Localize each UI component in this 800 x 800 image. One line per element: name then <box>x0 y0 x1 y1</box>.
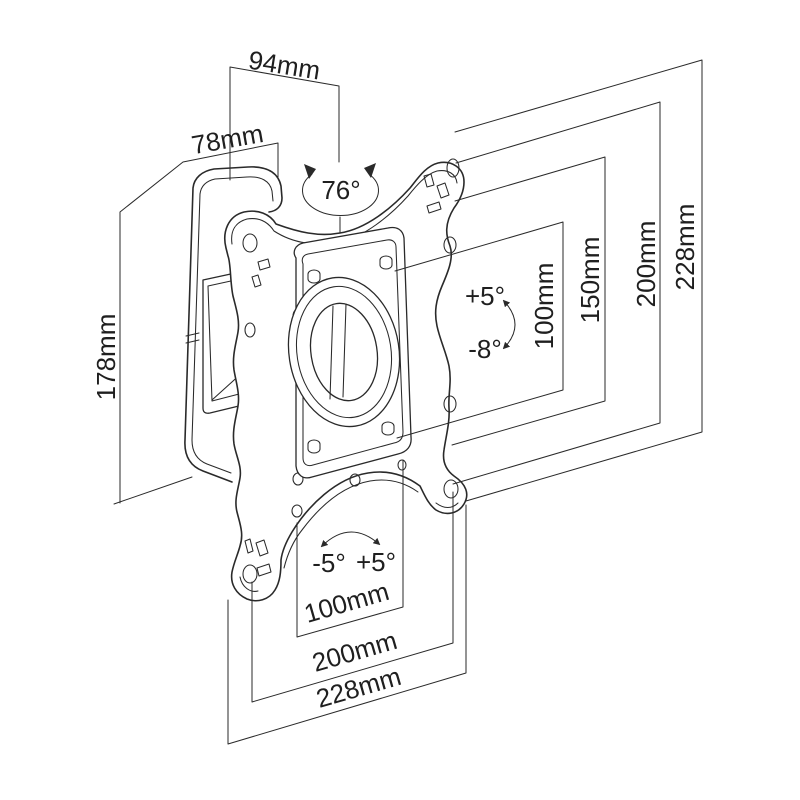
dim-label-wall-plate-width: 78mm <box>189 118 265 160</box>
boss-bottom-left <box>308 440 320 453</box>
boss-top-left <box>308 270 320 283</box>
angle-label-base-left: -5° <box>312 548 346 578</box>
swivel-arrow-right-icon <box>364 163 376 178</box>
dim-label-right-228: 228mm <box>670 204 700 291</box>
base-swivel-arc-path <box>322 532 379 546</box>
dim-label-bottom-100: 100mm <box>301 576 393 629</box>
mount-dimension-diagram: 94mm 78mm 76° 178mm +5° -8° 100mm 150mm … <box>0 0 800 800</box>
tilt-arc <box>504 301 515 348</box>
base-swivel-arc <box>322 532 379 546</box>
dim-label-right-100: 100mm <box>529 263 559 350</box>
tilt-bracket <box>278 227 411 477</box>
dim-label-right-200: 200mm <box>631 221 661 308</box>
boss-top-right <box>380 256 392 269</box>
angle-label-tilt-down: -8° <box>468 334 502 364</box>
angle-label-base-right: +5° <box>356 547 396 577</box>
boss-bottom-right <box>382 422 394 435</box>
angle-label-tilt-up: +5° <box>465 281 505 311</box>
tilt-arc-path <box>504 301 515 348</box>
diagram-canvas: 94mm 78mm 76° 178mm +5° -8° 100mm 150mm … <box>0 0 800 800</box>
swivel-arrow-left-icon <box>304 164 316 179</box>
angle-label-swivel-range: 76° <box>321 175 360 205</box>
dim-label-right-150: 150mm <box>575 237 605 324</box>
dim-label-wall-plate-height: 178mm <box>91 314 121 401</box>
dim-label-depth: 94mm <box>246 45 322 86</box>
